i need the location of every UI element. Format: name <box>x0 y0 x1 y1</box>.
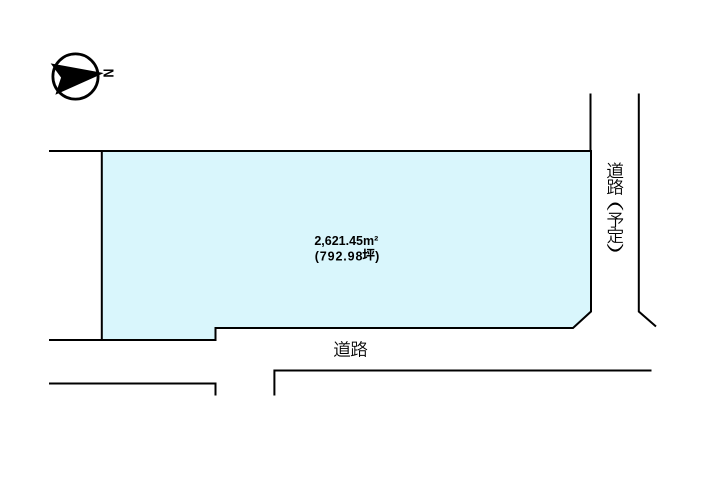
svg-text:): ) <box>375 249 379 263</box>
svg-text:(792.98: (792.98 <box>315 249 364 263</box>
svg-text:N: N <box>100 69 116 78</box>
svg-text:2,621.45m²: 2,621.45m² <box>314 234 378 248</box>
